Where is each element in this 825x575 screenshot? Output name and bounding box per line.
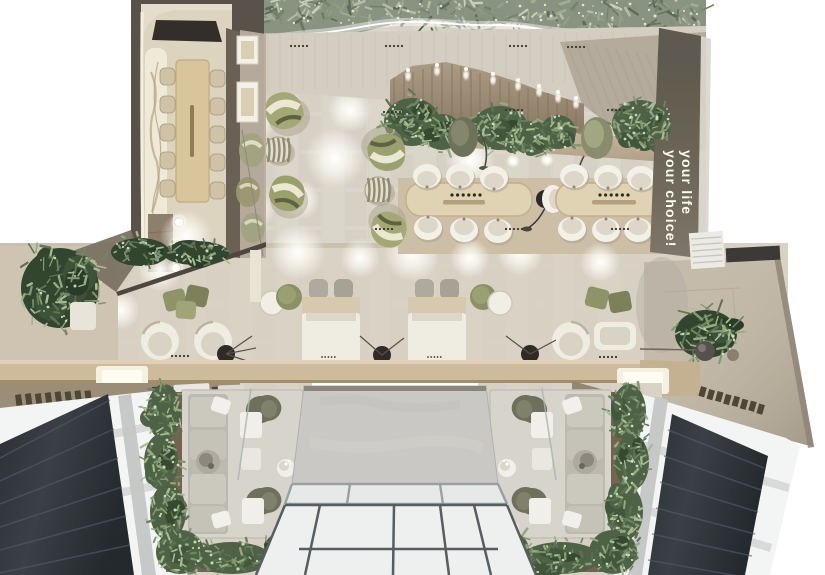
svg-text:your life: your life xyxy=(679,150,695,215)
svg-text:your choice!: your choice! xyxy=(663,150,679,248)
